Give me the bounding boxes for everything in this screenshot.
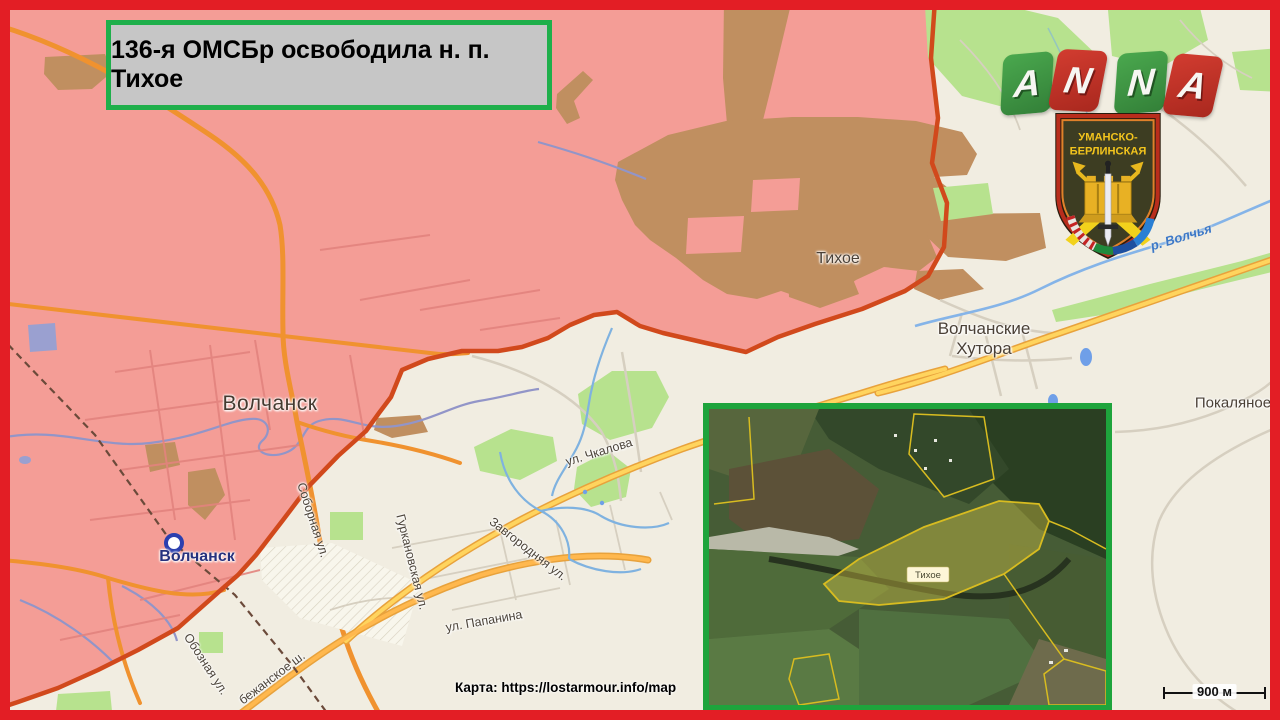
logo-letter: N — [1061, 61, 1095, 99]
satellite-label-tihoe: Тихое — [907, 567, 949, 582]
logo-tile-a2: A — [1161, 53, 1224, 118]
satellite-inset: Тихое — [703, 403, 1112, 711]
zone-pond — [28, 323, 57, 352]
label-volchanskie-hutora: Волчанские Хутора — [938, 319, 1031, 359]
title-banner: 136-я ОМСБр освободила н. п. Тихое — [106, 20, 552, 110]
satellite-image: Тихое — [709, 409, 1106, 705]
scale-bar-label: 900 м — [1192, 684, 1237, 699]
scale-bar-tick-left — [1163, 687, 1165, 699]
label-pokalyanoe: Покаляное — [1195, 395, 1271, 412]
scale-bar-tick-right — [1264, 687, 1266, 699]
emblem-text-line2: БЕРЛИНСКАЯ — [1070, 146, 1147, 158]
logo-letter: A — [1013, 64, 1042, 103]
title-banner-text: 136-я ОМСБр освободила н. п. Тихое — [111, 36, 547, 94]
scale-bar: 900 м — [1163, 686, 1266, 700]
infographic-canvas: Тихое Волчанск Волчанск Волчанские Хутор… — [0, 0, 1280, 720]
label-volchansk-town: Волчанск — [159, 548, 234, 566]
label-hutora-line2: Хутора — [938, 339, 1031, 359]
map-credit: Карта: https://lostarmour.info/map — [455, 680, 676, 695]
label-tihoe: Тихое — [816, 250, 860, 268]
logo-tile-a1: A — [1000, 51, 1054, 116]
brigade-emblem: УМАНСКО- БЕРЛИНСКАЯ — [1052, 111, 1164, 261]
logo-letter: N — [1126, 63, 1156, 102]
svg-text:Тихое: Тихое — [915, 570, 941, 581]
label-volchansk: Волчанск — [223, 392, 318, 416]
zone-pond-small — [19, 456, 31, 464]
logo-letter: A — [1176, 66, 1211, 105]
anna-news-logo: A N N A — [1000, 46, 1224, 120]
logo-tile-n2: N — [1114, 50, 1169, 114]
label-hutora-line1: Волчанские — [938, 319, 1031, 339]
logo-tile-n1: N — [1047, 49, 1108, 113]
emblem-text-line1: УМАНСКО- — [1078, 131, 1138, 143]
